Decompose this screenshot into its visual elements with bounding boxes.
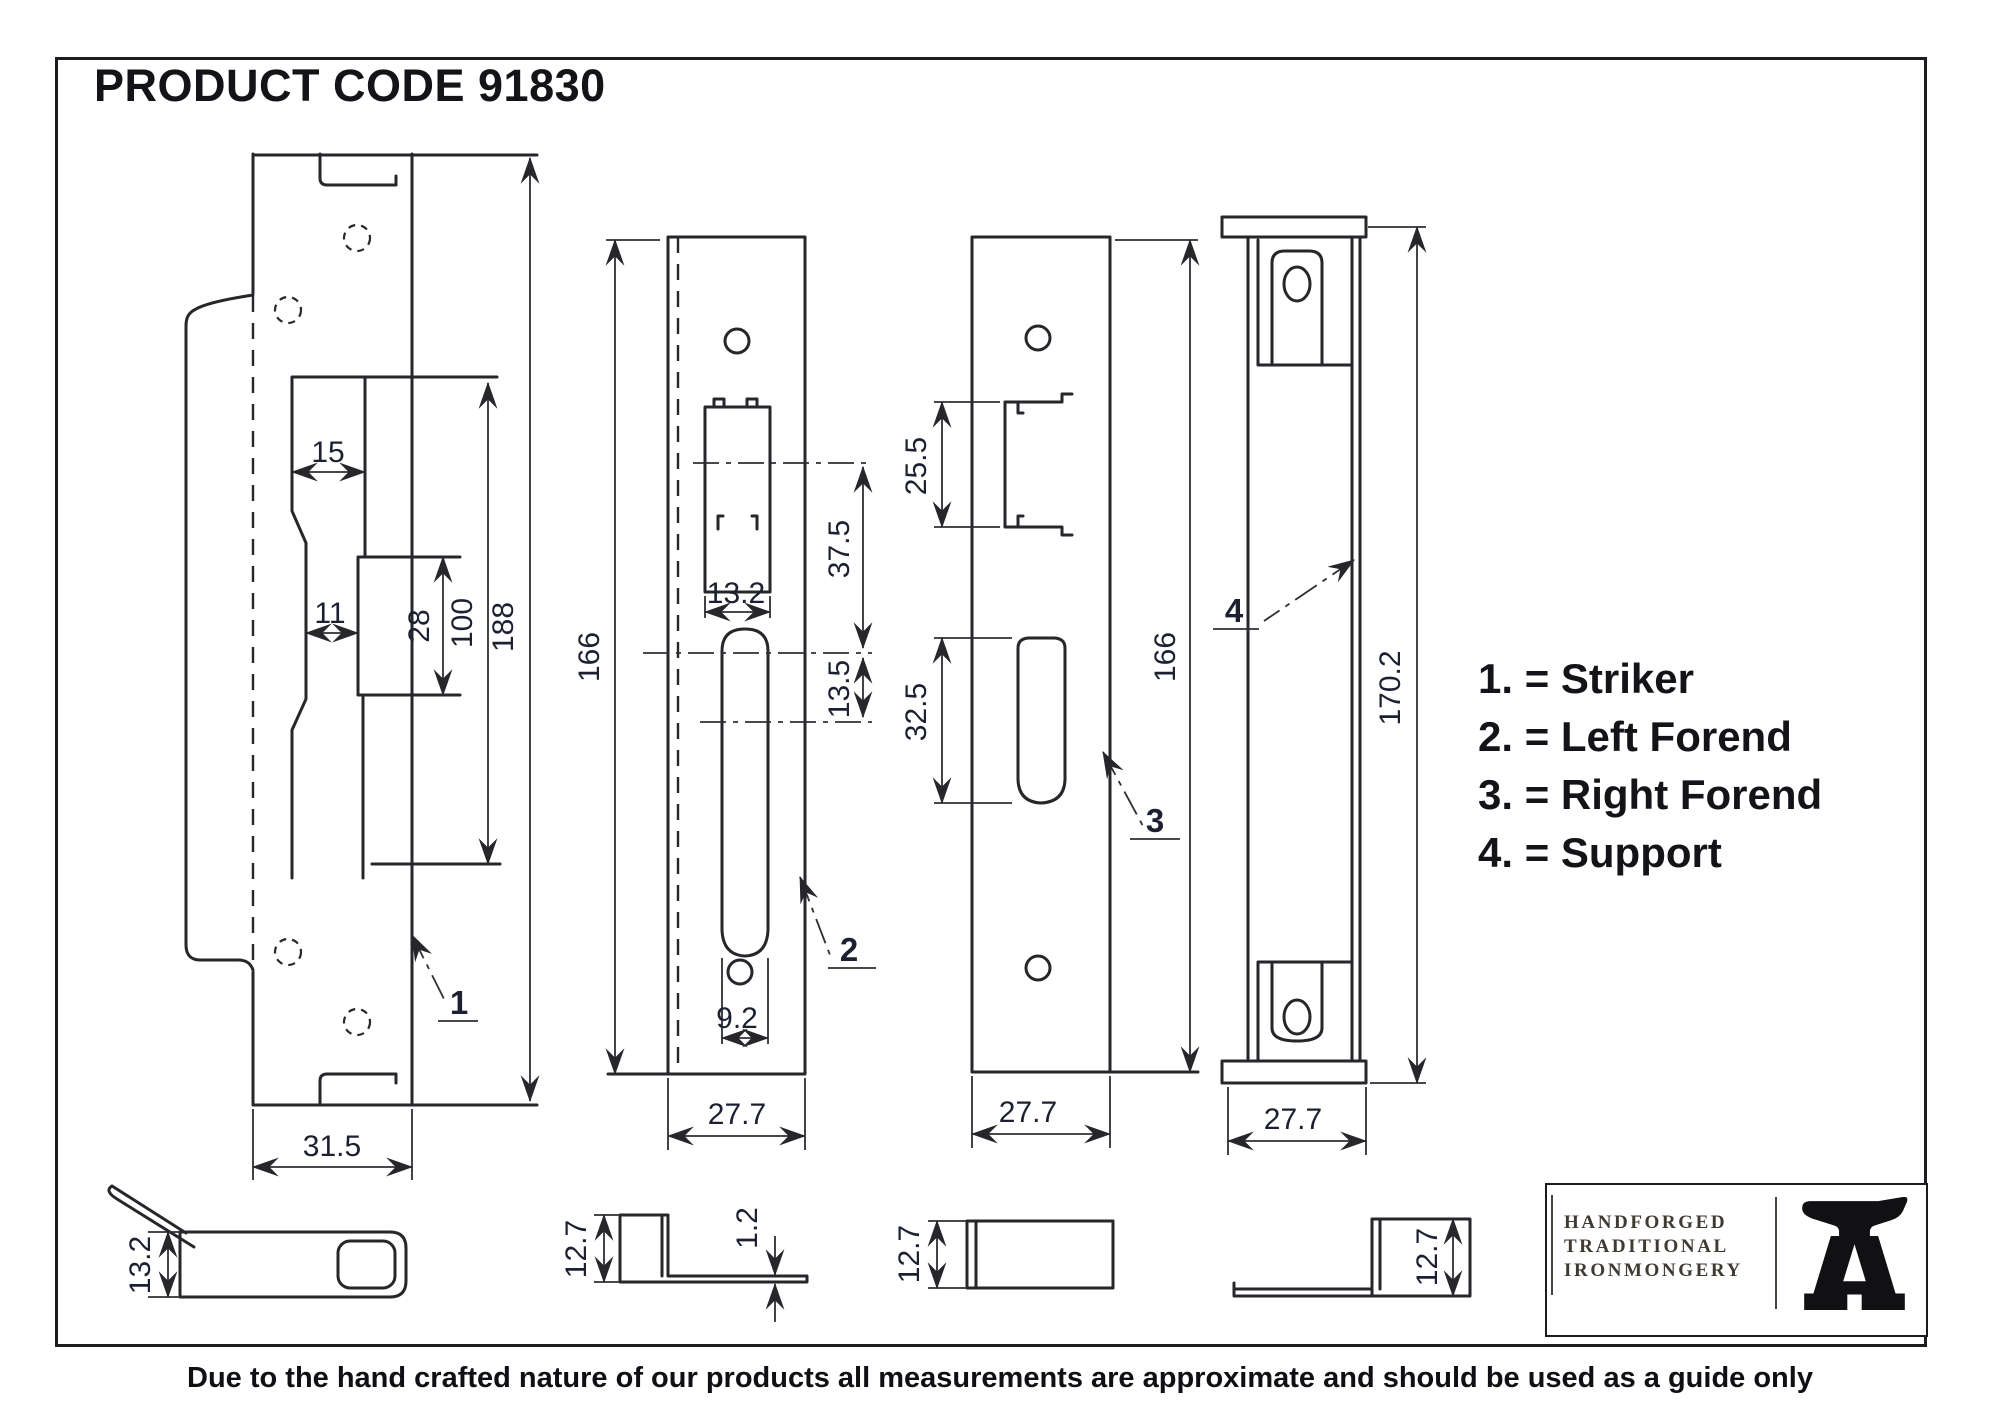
part-number-label: 2 [840, 931, 858, 968]
support-top-slot-hole [1284, 267, 1310, 301]
right-forend-dim-12-7: 12.7 [893, 1221, 967, 1288]
parts-legend: 1. = Striker 2. = Left Forend 3. = Right… [1478, 650, 1822, 882]
support-section-view: 12.7 [1234, 1219, 1470, 1296]
legend-item-right-forend: 3. = Right Forend [1478, 766, 1822, 824]
part-number-label: 3 [1146, 802, 1164, 839]
dim-label: 25.5 [900, 437, 933, 495]
left-forend-outline [608, 237, 805, 1074]
logo-line-1: HANDFORGED [1564, 1211, 1743, 1235]
striker-dim-31-5: 31.5 [253, 1109, 412, 1180]
support-bottom-pocket [1258, 962, 1352, 1061]
disclaimer-text: Due to the hand crafted nature of our pr… [0, 1362, 2000, 1395]
striker-dim-28: 28 [403, 557, 443, 695]
logo-left-rule [1551, 1195, 1553, 1295]
left-forend-leader: 2 [800, 877, 876, 968]
right-forend-dim-25-5: 25.5 [900, 402, 1000, 527]
dim-label: 31.5 [303, 1130, 361, 1163]
striker-leader: 1 [412, 935, 478, 1021]
logo-wordmark: HANDFORGED TRADITIONAL IRONMONGERY [1564, 1211, 1743, 1283]
left-forend-section-outline [620, 1215, 807, 1282]
dim-label: 1.2 [731, 1207, 764, 1249]
right-forend-latch-cutout [1005, 394, 1072, 535]
support-body [1248, 237, 1360, 1061]
right-forend-bolt-slot [1018, 638, 1065, 803]
dim-label: 27.7 [999, 1096, 1057, 1129]
dim-label: 13.2 [707, 577, 765, 610]
right-forend-section-view: 12.7 [893, 1221, 1113, 1288]
dim-label: 15 [311, 436, 344, 469]
left-forend-dim-13-5: 13.5 [823, 658, 863, 718]
right-forend-screw-holes [1026, 326, 1050, 980]
anvil-icon [1792, 1197, 1917, 1317]
left-forend-dim-166: 166 [573, 240, 660, 1074]
part-number-label: 4 [1225, 592, 1244, 629]
left-forend-bolt-slot [722, 629, 768, 956]
striker-front-view: 15 11 28 100 188 31.5 1 [186, 154, 537, 1180]
dim-label: 32.5 [900, 683, 933, 741]
dim-label: 188 [487, 602, 520, 652]
right-forend-leader: 3 [1103, 752, 1180, 839]
left-forend-screw-holes [725, 329, 752, 984]
dim-label: 170.2 [1374, 650, 1407, 725]
support-dim-27-7: 27.7 [1228, 1087, 1366, 1155]
left-forend-dim-37-5: 37.5 [823, 467, 863, 648]
support-front-view: 170.2 27.7 4 [1213, 217, 1426, 1155]
support-dim-12-7: 12.7 [1411, 1219, 1453, 1296]
left-forend-dim-1-2: 1.2 [731, 1207, 775, 1322]
striker-top-lip [320, 154, 396, 185]
dim-label: 12.7 [560, 1220, 593, 1278]
left-forend-front-view: 166 13.2 37.5 13.5 9.2 27.7 2 [573, 237, 876, 1150]
support-bottom-slot-hole [1284, 1000, 1310, 1034]
dim-label: 12.7 [1411, 1228, 1444, 1286]
striker-side-hole [338, 1241, 395, 1288]
right-forend-dim-166: 166 [1115, 240, 1198, 1072]
right-forend-dim-32-5: 32.5 [900, 638, 1012, 803]
dim-label: 28 [403, 609, 436, 642]
striker-dim-15: 15 [292, 436, 365, 472]
logo-divider [1775, 1197, 1777, 1309]
dim-label: 12.7 [893, 1225, 926, 1283]
dim-label: 37.5 [823, 520, 856, 578]
left-forend-dim-27-7: 27.7 [668, 1078, 805, 1150]
dim-label: 9.2 [716, 1002, 758, 1035]
dim-label: 13.2 [124, 1236, 157, 1294]
dim-label: 13.5 [823, 660, 856, 718]
dim-label: 166 [573, 632, 606, 682]
support-top-pocket [1258, 240, 1352, 365]
support-bottom-cap [1222, 1061, 1366, 1083]
support-dim-170-2: 170.2 [1368, 227, 1426, 1083]
striker-flap [186, 295, 253, 970]
support-leader: 4 [1213, 560, 1354, 629]
logo-line-2: TRADITIONAL [1564, 1235, 1743, 1259]
dim-label: 27.7 [1264, 1103, 1322, 1136]
striker-dim-100: 100 [446, 383, 488, 864]
brand-logo: HANDFORGED TRADITIONAL IRONMONGERY [1545, 1183, 1928, 1337]
dim-label: 27.7 [708, 1098, 766, 1131]
striker-dim-11: 11 [306, 597, 358, 633]
striker-side-view: 13.2 [109, 1186, 406, 1297]
striker-dim-13-2: 13.2 [124, 1232, 180, 1297]
striker-dim-188: 188 [487, 158, 530, 1101]
left-forend-latch-cutout [705, 399, 770, 592]
dim-label: 166 [1149, 632, 1182, 682]
left-forend-dim-12-7: 12.7 [560, 1215, 620, 1282]
left-forend-section-view: 12.7 1.2 [560, 1207, 807, 1322]
left-forend-dim-9-2: 9.2 [716, 958, 768, 1044]
support-top-cap [1222, 217, 1366, 237]
striker-screw-holes [275, 225, 370, 1035]
right-forend-front-view: 25.5 32.5 166 27.7 3 [900, 237, 1198, 1148]
legend-item-left-forend: 2. = Left Forend [1478, 708, 1822, 766]
striker-bottom-lip [320, 1074, 396, 1105]
part-number-label: 1 [450, 984, 468, 1021]
dim-label: 100 [446, 598, 479, 648]
logo-line-3: IRONMONGERY [1564, 1259, 1743, 1283]
right-forend-dim-27-7: 27.7 [972, 1076, 1110, 1148]
legend-item-striker: 1. = Striker [1478, 650, 1822, 708]
right-forend-section-outline [967, 1221, 1113, 1288]
legend-item-support: 4. = Support [1478, 824, 1822, 882]
dim-label: 11 [314, 597, 345, 630]
left-forend-dim-13-2: 13.2 [705, 577, 770, 618]
